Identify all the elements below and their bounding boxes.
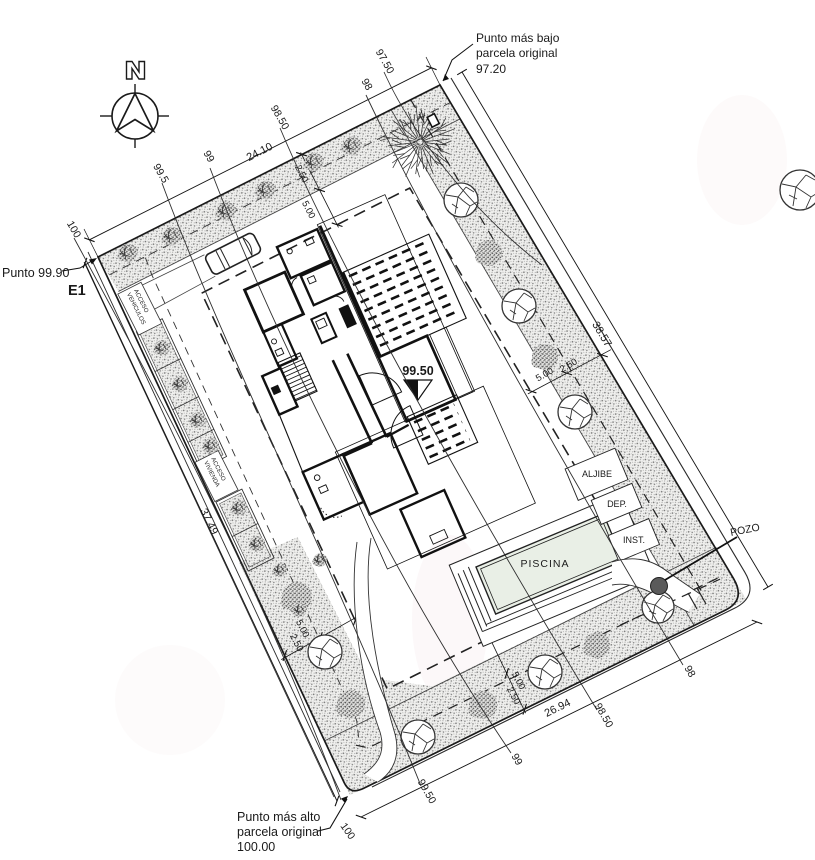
svg-text:99.50: 99.50 [402,364,433,378]
svg-text:parcela original: parcela original [237,825,322,839]
svg-text:parcela original: parcela original [476,46,557,60]
svg-text:DEP.: DEP. [607,499,627,509]
svg-text:E1: E1 [68,283,86,299]
svg-text:Punto 99.90: Punto 99.90 [2,266,69,280]
svg-text:Punto más bajo: Punto más bajo [476,31,560,45]
svg-text:INST.: INST. [623,535,645,545]
svg-text:100.00: 100.00 [237,840,275,854]
svg-text:PISCINA: PISCINA [520,558,569,570]
svg-text:Punto más alto: Punto más alto [237,810,320,824]
svg-text:ALJIBE: ALJIBE [582,469,612,479]
svg-text:97.20: 97.20 [476,62,506,76]
